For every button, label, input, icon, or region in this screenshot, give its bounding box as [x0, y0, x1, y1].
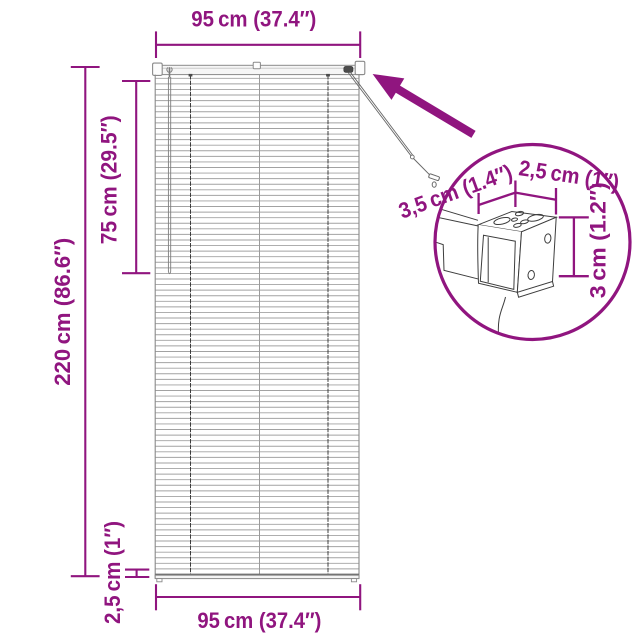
svg-text:95 cm (37.4″): 95 cm (37.4″) — [197, 608, 321, 633]
svg-text:75 cm (29.5″): 75 cm (29.5″) — [97, 115, 122, 244]
svg-text:2,5 cm (1″): 2,5 cm (1″) — [100, 521, 125, 624]
svg-text:95 cm (37.4″): 95 cm (37.4″) — [191, 6, 316, 31]
svg-text:3 cm (1.2″): 3 cm (1.2″) — [586, 182, 611, 298]
svg-text:220 cm (86.6″): 220 cm (86.6″) — [50, 238, 75, 386]
